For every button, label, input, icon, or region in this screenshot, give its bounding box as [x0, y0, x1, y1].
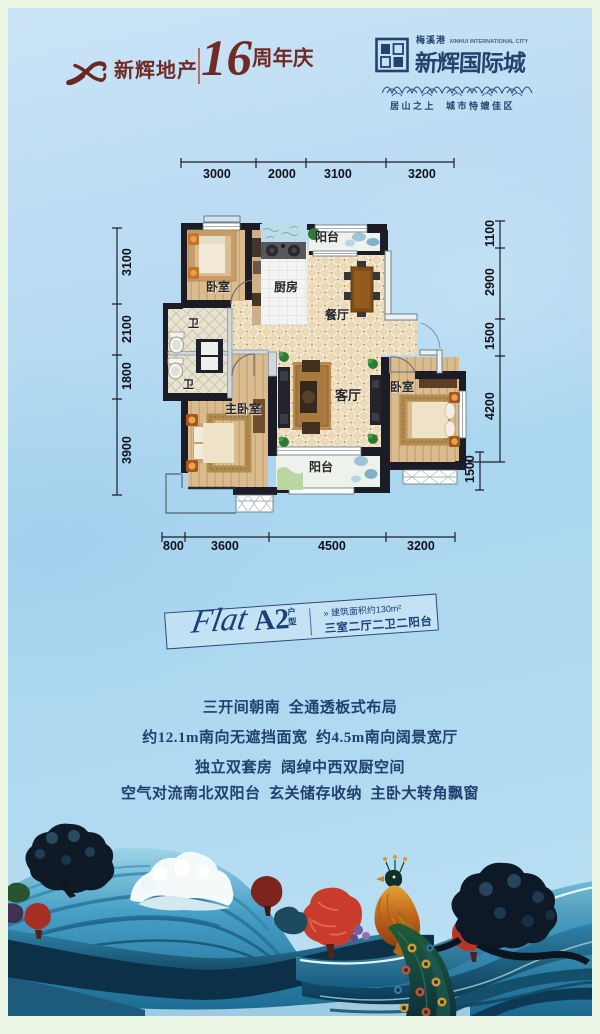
svg-text:阳台: 阳台 [309, 459, 333, 474]
svg-text:阳台: 阳台 [315, 229, 339, 244]
svg-text:卫: 卫 [183, 378, 194, 391]
svg-text:3100: 3100 [324, 167, 352, 181]
svg-text:卫: 卫 [188, 317, 199, 330]
svg-text:2900: 2900 [483, 268, 497, 296]
svg-text:2100: 2100 [120, 315, 134, 343]
svg-text:1800: 1800 [120, 362, 134, 390]
svg-text:3900: 3900 [120, 436, 134, 464]
svg-text:卧室: 卧室 [390, 379, 414, 394]
svg-text:1500: 1500 [463, 455, 477, 483]
svg-text:客厅: 客厅 [335, 388, 361, 403]
svg-text:1500: 1500 [483, 322, 497, 350]
svg-text:800: 800 [163, 539, 184, 553]
svg-text:3600: 3600 [211, 539, 239, 553]
svg-text:3200: 3200 [408, 167, 436, 181]
svg-text:3000: 3000 [203, 167, 231, 181]
svg-text:2000: 2000 [268, 167, 296, 181]
svg-text:餐厅: 餐厅 [325, 307, 349, 322]
svg-text:4500: 4500 [318, 539, 346, 553]
svg-text:厨房: 厨房 [274, 279, 298, 294]
svg-text:1100: 1100 [483, 220, 497, 247]
svg-text:主卧室: 主卧室 [225, 401, 261, 416]
svg-text:卧室: 卧室 [206, 279, 230, 294]
svg-text:3200: 3200 [407, 539, 435, 553]
svg-text:4200: 4200 [483, 392, 497, 420]
svg-text:3100: 3100 [120, 248, 134, 276]
